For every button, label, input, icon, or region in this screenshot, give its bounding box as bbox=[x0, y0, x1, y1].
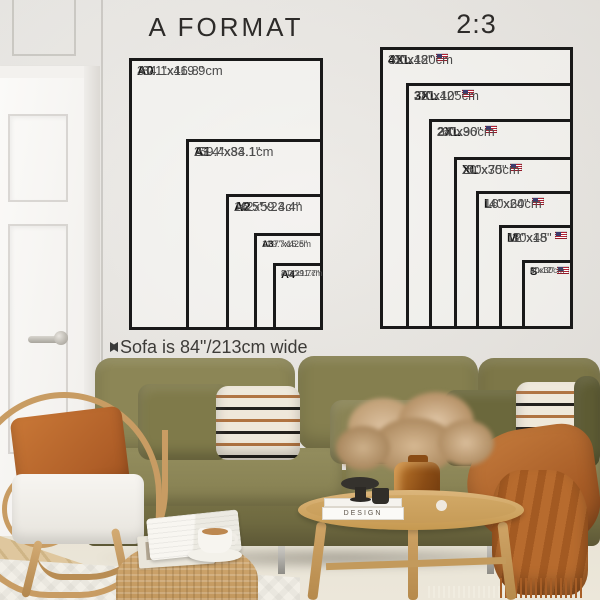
us-flag-icon bbox=[555, 231, 567, 239]
a-format-title: A FORMAT bbox=[129, 12, 323, 43]
arrow-right-icon bbox=[110, 342, 118, 352]
striped-pillow-left bbox=[216, 386, 300, 460]
flower-cluster bbox=[438, 420, 494, 466]
ratio-2-3-size-chart: 4XL32"x48"80x120cm3XL28"x42"70x105cm2XL2… bbox=[380, 47, 573, 329]
wall-panel-molding bbox=[12, 0, 76, 56]
door-panel bbox=[8, 114, 68, 202]
sofa-width-text: Sofa is 84"/213cm wide bbox=[120, 337, 308, 358]
design-book-spine: DESIGN bbox=[322, 507, 404, 520]
door-frame-header bbox=[0, 66, 96, 78]
decor-ball bbox=[436, 500, 447, 511]
sofa-width-annotation: Sofa is 84"/213cm wide bbox=[110, 337, 597, 357]
sofa-leg bbox=[278, 544, 285, 574]
latte-foam bbox=[202, 528, 228, 535]
flower-cluster bbox=[336, 426, 390, 470]
size-rect-a4: A48.3"x11.7"21x29.7cm bbox=[273, 263, 323, 330]
size-rect-s: S8"x12"20x30cm bbox=[522, 260, 573, 329]
black-cup bbox=[372, 488, 389, 504]
living-room-scene: A FORMAT 2:3 A031.1"x46.8"84.1x119.9cmA1… bbox=[0, 0, 600, 600]
ratio-title: 2:3 bbox=[380, 9, 573, 40]
black-bowl-foot bbox=[350, 497, 371, 502]
door-handle-rose bbox=[54, 331, 68, 345]
a-format-size-chart: A031.1"x46.8"84.1x119.9cmA123.4"x33.1"59… bbox=[129, 58, 323, 330]
